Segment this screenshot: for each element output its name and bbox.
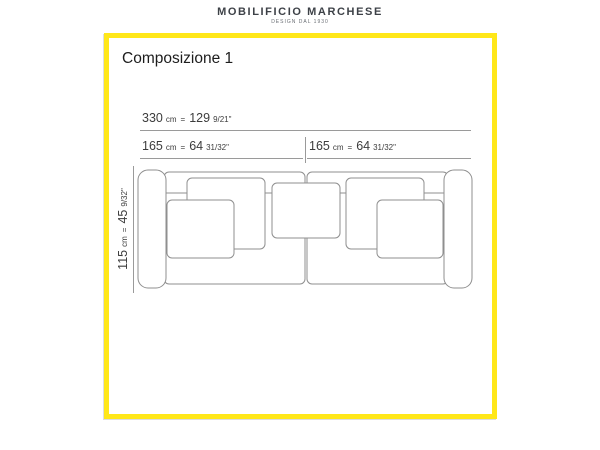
dim-right-inch-frac: 31/32": [373, 143, 396, 152]
dim-total-cm-value: 330: [142, 111, 163, 125]
dim-left-cm-unit: cm: [166, 143, 177, 152]
dim-right-cm-value: 165: [309, 139, 330, 153]
dimension-left-module-width: 165 cm = 64 31/32": [140, 139, 303, 159]
dim-height-equals: =: [120, 228, 129, 233]
dim-height-inch-frac: 9/32": [120, 188, 129, 206]
dim-total-inch-frac: 9/21": [213, 115, 231, 124]
brand-logo-text: MOBILIFICIO MARCHESE: [0, 6, 600, 18]
dim-total-inch-value: 129: [189, 111, 210, 125]
dimension-height: 115 cm = 45 9/32": [116, 168, 132, 292]
sofa-drawing: [136, 164, 476, 296]
dim-right-inch-value: 64: [356, 139, 370, 153]
dim-total-cm-unit: cm: [166, 115, 177, 124]
dim-height-cm-value: 115: [116, 250, 130, 270]
dimension-total-width: 330 cm = 129 9/21": [140, 111, 471, 131]
dimension-right-module-width: 165 cm = 64 31/32": [307, 139, 471, 159]
dim-left-equals: =: [181, 143, 186, 152]
dimension-height-line: [133, 166, 134, 293]
armrest-right: [444, 170, 472, 288]
dim-height-cm-unit: cm: [120, 236, 129, 247]
dim-right-cm-unit: cm: [333, 143, 344, 152]
spec-sheet-page: MOBILIFICIO MARCHESE DESIGN DAL 1930 Com…: [0, 0, 600, 450]
front-cushion-right: [377, 200, 443, 258]
dim-left-inch-value: 64: [189, 139, 203, 153]
dim-total-equals: =: [181, 115, 186, 124]
dim-left-inch-frac: 31/32": [206, 143, 229, 152]
center-cushion: [272, 183, 340, 238]
dim-left-cm-value: 165: [142, 139, 163, 153]
front-cushion-left: [167, 200, 234, 258]
dim-right-equals: =: [348, 143, 353, 152]
dim-height-inch-value: 45: [116, 210, 130, 224]
brand-tagline: DESIGN DAL 1930: [0, 19, 600, 25]
armrest-left: [138, 170, 166, 288]
dimension-divider-line: [305, 137, 306, 163]
page-title: Composizione 1: [122, 50, 233, 68]
